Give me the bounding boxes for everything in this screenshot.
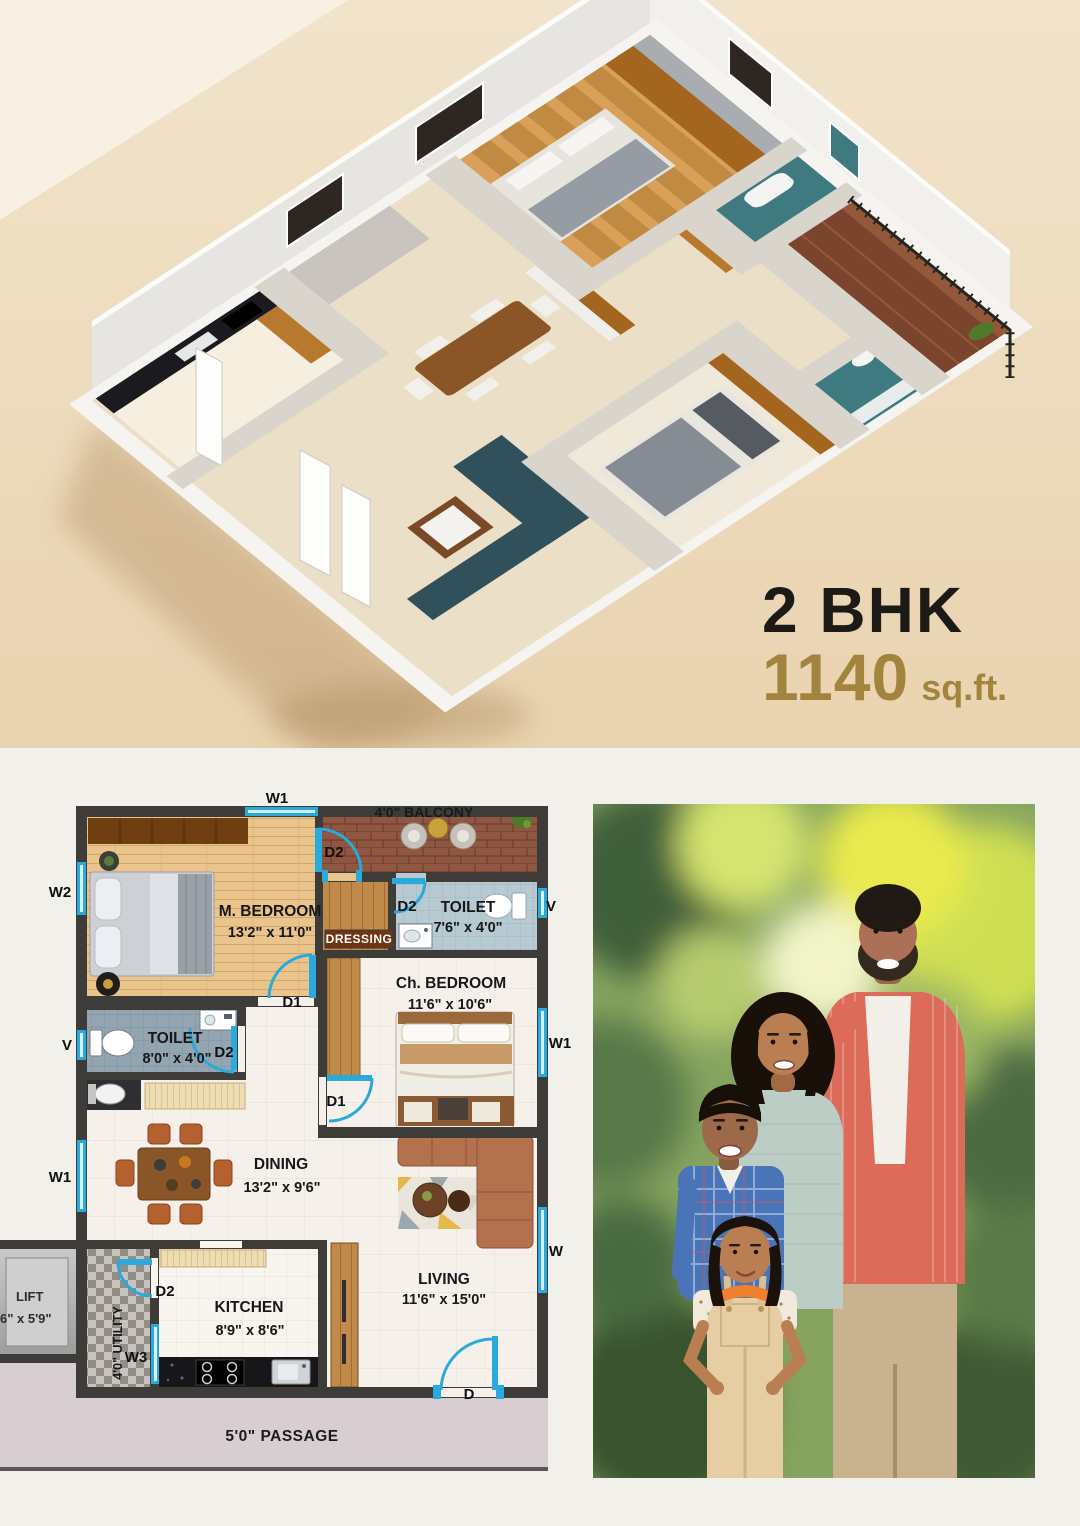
wc-tank xyxy=(512,893,526,919)
marker-v-left: V xyxy=(62,1037,72,1054)
dresser-counter xyxy=(145,1083,245,1109)
label-dressing: DRESSING xyxy=(326,932,393,946)
window-w1-right xyxy=(538,1008,547,1077)
window-w2-left xyxy=(77,862,86,915)
marker-d-main: D xyxy=(464,1386,475,1403)
window-w3-utility xyxy=(151,1324,159,1384)
hero-caption: 2 BHK 1140 sq.ft. xyxy=(762,578,1007,710)
marker-w1-right: W1 xyxy=(549,1035,572,1052)
label-m-bedroom: M. BEDROOM xyxy=(219,903,321,920)
floor-plan-2d: M. BEDROOM 13'2" x 11'0" 4'0" BALCONY TO… xyxy=(0,748,580,1526)
vent-v-left xyxy=(77,1030,86,1060)
label-toilet-attached: TOILET xyxy=(441,899,496,916)
label-dining: DINING xyxy=(254,1156,308,1173)
man-hair xyxy=(855,884,921,932)
hero-section: 2 BHK 1140 sq.ft. xyxy=(0,0,1080,748)
family-photo xyxy=(593,804,1035,1478)
label-toilet-common: TOILET xyxy=(148,1030,203,1047)
chair xyxy=(180,1204,202,1224)
kitchen-counter xyxy=(160,1250,266,1267)
boy-arm xyxy=(681,1186,688,1272)
marker-w2: W2 xyxy=(49,884,72,901)
area-unit: sq.ft. xyxy=(921,667,1007,709)
marker-d1-master: D1 xyxy=(282,994,301,1011)
floor-bedroom-ext xyxy=(248,817,315,872)
label-living: LIVING xyxy=(418,1271,470,1288)
label-ch-bedroom-dims: 11'6" x 10'6" xyxy=(408,997,492,1013)
marker-w1-top: W1 xyxy=(266,790,289,807)
label-lift-dims: 6" x 5'9" xyxy=(0,1311,52,1326)
marker-w-right: W xyxy=(549,1243,564,1260)
marker-d1-child: D1 xyxy=(326,1093,345,1110)
label-m-bedroom-dims: 13'2" x 11'0" xyxy=(228,925,312,941)
label-kitchen-dims: 8'9" x 8'6" xyxy=(215,1323,284,1339)
marker-d2-toilet-attached: D2 xyxy=(397,898,416,915)
label-kitchen: KITCHEN xyxy=(215,1299,284,1316)
passage-left xyxy=(0,1363,76,1401)
label-balcony: 4'0" BALCONY xyxy=(375,804,474,820)
marker-w3: W3 xyxy=(125,1349,148,1366)
window-w1-top xyxy=(245,807,318,816)
marker-d2-toilet-common: D2 xyxy=(214,1044,233,1061)
marker-w1-left: W1 xyxy=(49,1169,72,1186)
label-utility: 4'0" UTILITY xyxy=(111,1306,125,1380)
label-toilet-attached-dims: 7'6" x 4'0" xyxy=(433,920,502,936)
chair xyxy=(116,1160,134,1186)
marker-v-right: V xyxy=(546,898,556,915)
chair xyxy=(148,1204,170,1224)
label-dining-dims: 13'2" x 9'6" xyxy=(243,1180,320,1196)
label-passage: 5'0" PASSAGE xyxy=(225,1428,338,1445)
wc-tank xyxy=(90,1030,102,1056)
label-lift: LIFT xyxy=(16,1289,43,1304)
area-value: 1140 xyxy=(762,644,909,710)
chair xyxy=(214,1160,232,1186)
brochure-page: 2 BHK 1140 sq.ft. xyxy=(0,0,1080,1526)
dining-table xyxy=(138,1148,210,1200)
coffee-table xyxy=(448,1190,470,1212)
chair xyxy=(148,1124,170,1144)
label-ch-bedroom: Ch. BEDROOM xyxy=(396,975,506,992)
balcony-table xyxy=(428,818,448,838)
drop-shadow-tip xyxy=(270,683,530,747)
label-toilet-common-dims: 8'0" x 4'0" xyxy=(142,1051,211,1067)
window-w-right xyxy=(538,1207,547,1293)
marker-d2-balcony: D2 xyxy=(324,844,343,861)
wc-bowl xyxy=(102,1030,134,1056)
passage-edge xyxy=(0,1467,548,1471)
wardrobe xyxy=(88,818,248,844)
chair xyxy=(180,1124,202,1144)
window-w1-left xyxy=(77,1140,86,1212)
marker-d2-utility: D2 xyxy=(155,1283,174,1300)
unit-type-label: 2 BHK xyxy=(762,578,1007,642)
label-living-dims: 11'6" x 15'0" xyxy=(402,1292,486,1308)
wardrobe xyxy=(327,958,360,1076)
